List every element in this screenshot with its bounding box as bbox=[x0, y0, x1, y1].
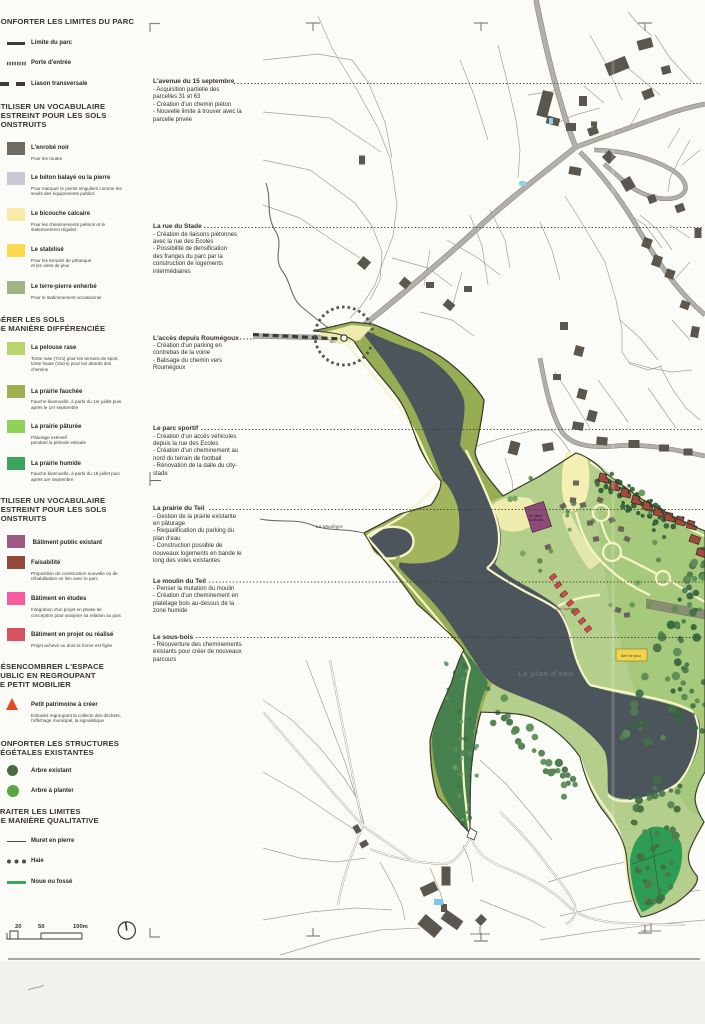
svg-text:Le plan d'eau: Le plan d'eau bbox=[518, 669, 573, 678]
svg-text:20: 20 bbox=[15, 924, 21, 930]
svg-text:Aire de jeux: Aire de jeux bbox=[621, 654, 641, 658]
svg-text:du Moulin: du Moulin bbox=[529, 518, 543, 522]
svg-text:La Moulègre: La Moulègre bbox=[316, 524, 343, 530]
svg-text:Des logements: Des logements bbox=[556, 607, 579, 611]
svg-text:100m: 100m bbox=[73, 924, 88, 930]
svg-text:50: 50 bbox=[38, 924, 44, 930]
